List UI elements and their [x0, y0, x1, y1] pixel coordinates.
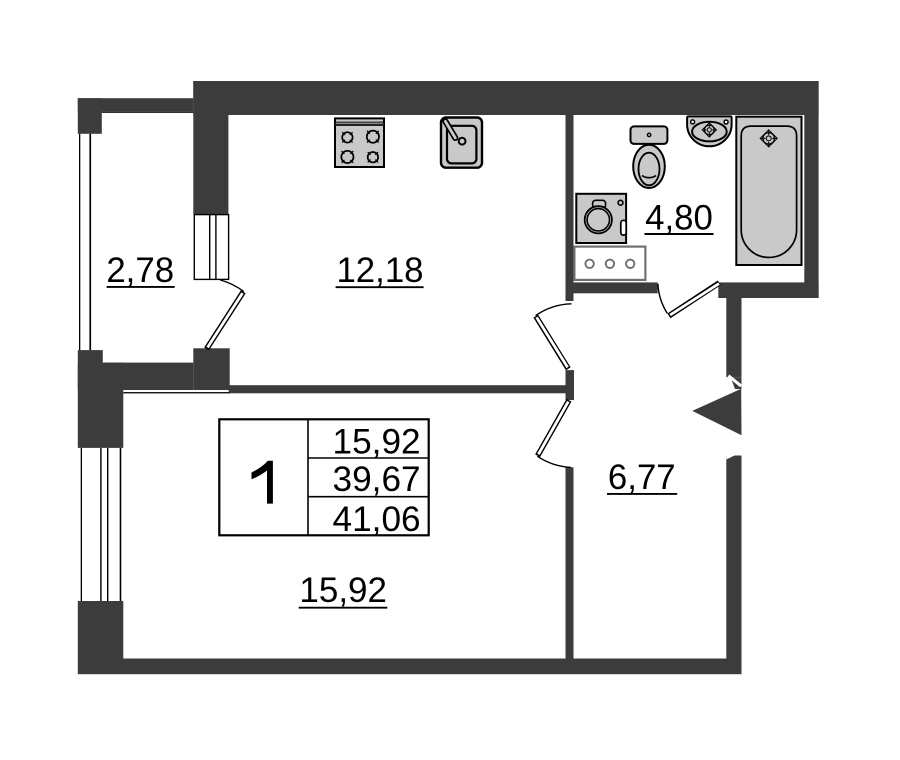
svg-text:2,78: 2,78 [106, 251, 174, 290]
svg-text:15,92: 15,92 [333, 423, 421, 462]
svg-text:4,80: 4,80 [645, 199, 713, 238]
svg-text:39,67: 39,67 [333, 460, 421, 499]
svg-text:12,18: 12,18 [336, 251, 423, 290]
svg-text:41,06: 41,06 [333, 500, 421, 539]
svg-text:15,92: 15,92 [299, 571, 387, 610]
svg-text:6,77: 6,77 [608, 458, 676, 497]
